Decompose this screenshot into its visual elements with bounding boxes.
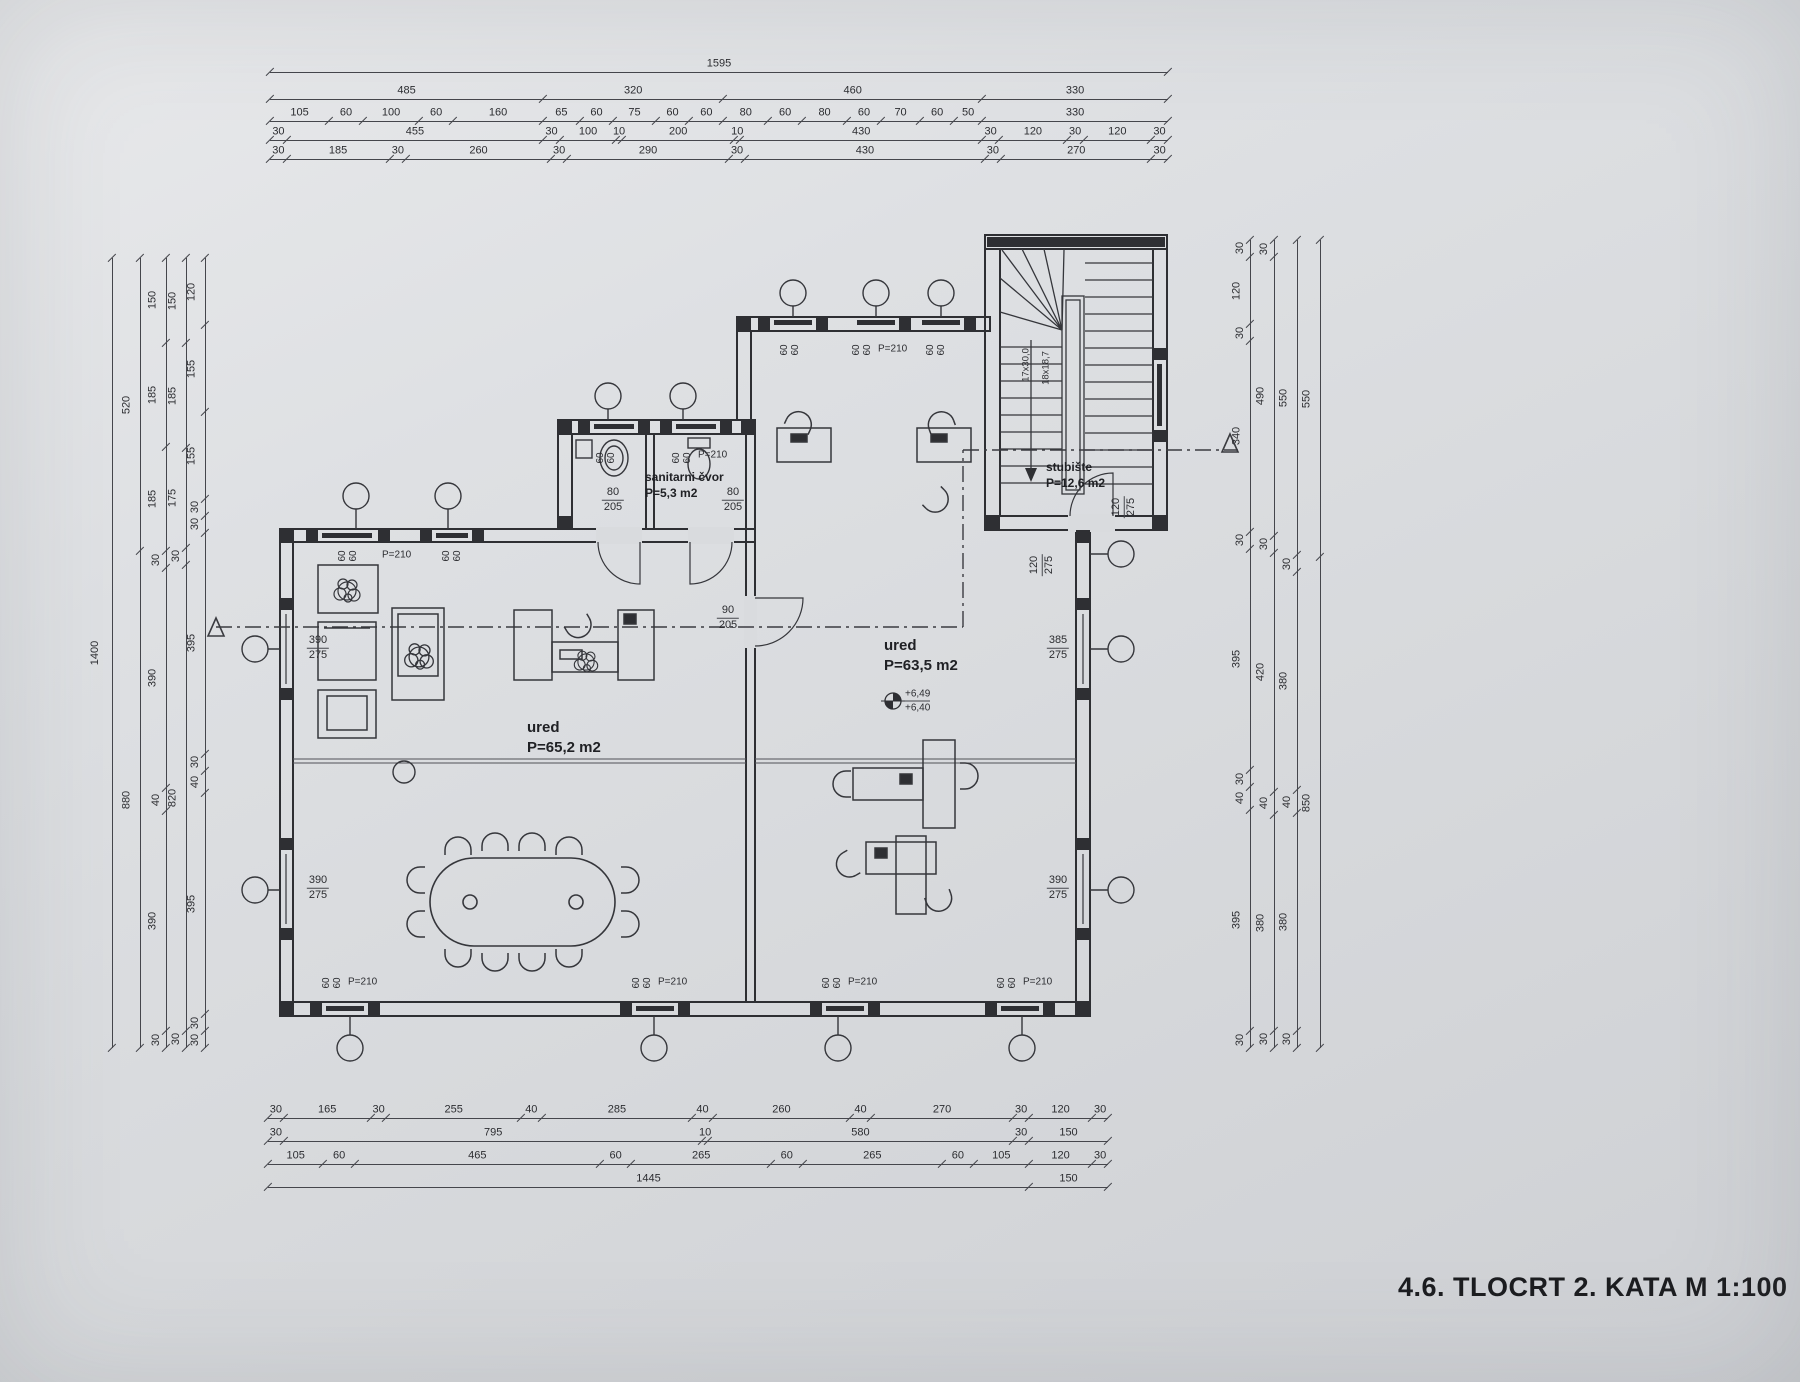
window-size-label-right-mid: 385275 (1047, 634, 1069, 663)
window-head-label: P=210 (878, 344, 907, 355)
window-label: 6060 (321, 976, 343, 991)
furniture-right-office (832, 740, 978, 915)
window-label: 6060 (631, 976, 653, 991)
floor-plan-drawing (0, 0, 1800, 1382)
window-label: 6060 (595, 451, 617, 466)
window-head-label: P=210 (658, 977, 687, 988)
window-label: 6060 (925, 343, 947, 358)
window-size-label-right-low: 390275 (1047, 874, 1069, 903)
opening-size-label-stair: 120275 (1028, 554, 1057, 576)
window-label: 6060 (779, 343, 801, 358)
room-label-office-right: uredP=63,5 m2 (884, 636, 958, 675)
elevation-label: +6,49+6,40 (905, 688, 930, 715)
door-size-label-sanitary-1: 80205 (602, 486, 624, 515)
window-size-label-left-low: 390275 (307, 874, 329, 903)
window-head-label: P=210 (382, 550, 411, 561)
window-label: 6060 (851, 343, 873, 358)
stair-step-label-treads: 17x30,0 (1021, 348, 1032, 382)
blueprint-sheet: 1595 485320460330 1056010060160656075606… (0, 0, 1800, 1382)
stair-step-label-risers: 18x18,7 (1041, 351, 1052, 385)
window-label: 6060 (337, 549, 359, 564)
window-label: 6060 (996, 976, 1018, 991)
conference-table (407, 833, 639, 971)
window-label: 6060 (441, 549, 463, 564)
sheet-title: 4.6. TLOCRT 2. KATA M 1:100 (1398, 1272, 1788, 1303)
window-size-label-left-mid: 390275 (307, 634, 329, 663)
window-label: 6060 (671, 451, 693, 466)
window-head-label: P=210 (848, 977, 877, 988)
window-label: 6060 (821, 976, 843, 991)
door-size-label-stair: 120275 (1110, 496, 1139, 518)
furniture-left-office (318, 565, 654, 738)
window-head-label: P=210 (1023, 977, 1052, 988)
room-label-staircase: stubišteP=12,6 m2 (1046, 460, 1105, 491)
furniture-upper-office (777, 407, 971, 517)
door-size-label-sanitary-2: 80205 (722, 486, 744, 515)
elevation-marker (881, 693, 905, 709)
window-head-label: P=210 (348, 977, 377, 988)
room-label-office-left: uredP=65,2 m2 (527, 718, 601, 757)
window-head-label: P=210 (698, 450, 727, 461)
room-label-sanitary: sanitarni čvorP=5,3 m2 (645, 470, 724, 501)
door-size-label-office: 90205 (717, 604, 739, 633)
